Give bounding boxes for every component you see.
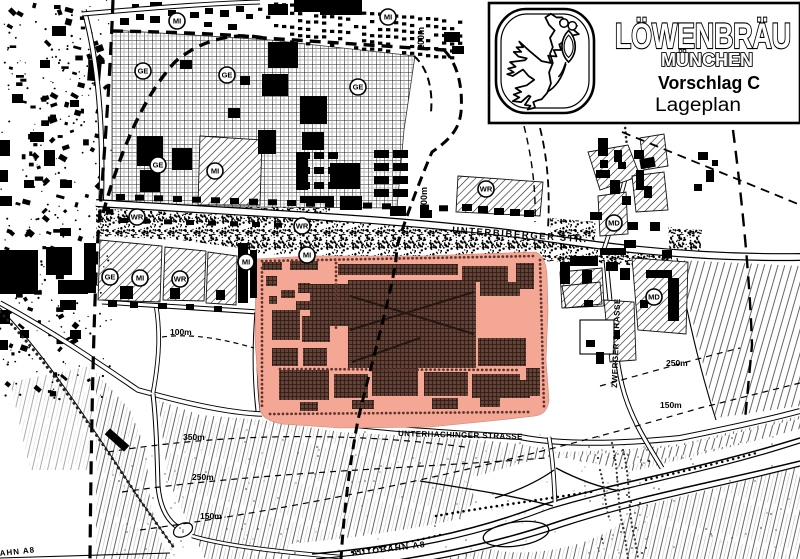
svg-text:100m: 100m <box>170 327 192 337</box>
svg-text:MI: MI <box>211 167 219 176</box>
svg-text:MI: MI <box>173 17 181 26</box>
svg-text:GE: GE <box>138 67 149 76</box>
svg-text:WR: WR <box>174 275 187 284</box>
svg-text:WR: WR <box>296 222 309 231</box>
svg-text:GE: GE <box>153 161 164 170</box>
svg-text:GE: GE <box>222 71 233 80</box>
svg-text:GE: GE <box>105 273 116 282</box>
svg-text:150m: 150m <box>660 400 682 410</box>
svg-text:MÜNCHEN: MÜNCHEN <box>661 50 753 70</box>
svg-text:350m: 350m <box>183 432 205 442</box>
svg-text:WR: WR <box>480 185 493 194</box>
svg-text:150m: 150m <box>200 511 222 521</box>
svg-text:MD: MD <box>608 219 620 228</box>
svg-text:GE: GE <box>353 83 364 92</box>
svg-text:WR: WR <box>131 213 144 222</box>
svg-text:Vorschlag C: Vorschlag C <box>658 72 760 93</box>
svg-text:MI: MI <box>136 274 144 283</box>
svg-text:MI: MI <box>303 251 311 260</box>
svg-text:MD: MD <box>648 293 660 302</box>
svg-text:MI: MI <box>242 258 250 267</box>
svg-text:250m: 250m <box>666 358 688 368</box>
svg-text:MI: MI <box>384 13 392 22</box>
svg-text:100m: 100m <box>419 187 429 210</box>
svg-text:Lageplan: Lageplan <box>655 95 741 116</box>
svg-text:100m: 100m <box>416 27 426 50</box>
svg-text:250m: 250m <box>192 472 214 482</box>
